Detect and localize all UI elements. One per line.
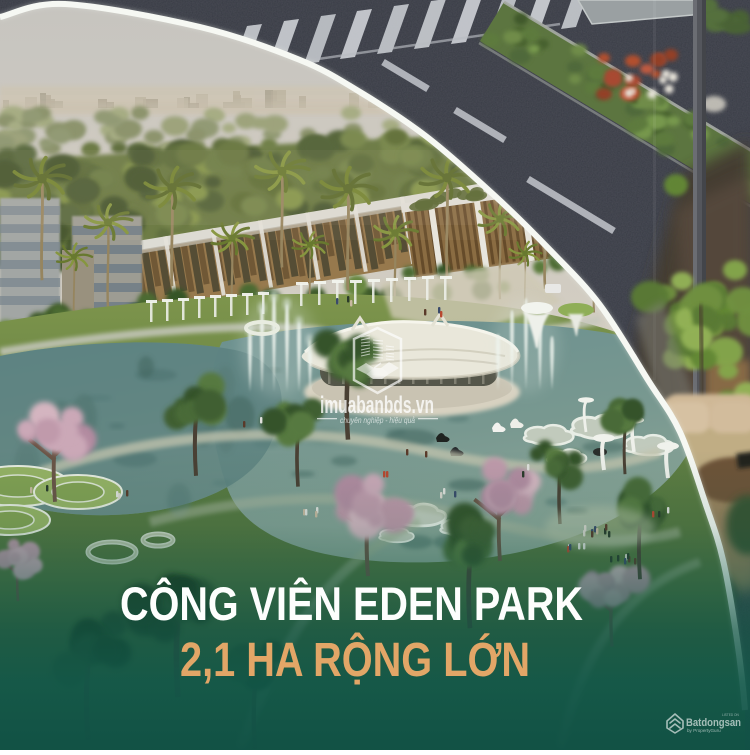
svg-text:CÔNG VIÊN EDEN PARK: CÔNG VIÊN EDEN PARK <box>120 577 583 630</box>
svg-text:chuyên nghiệp - hiệu quả: chuyên nghiệp - hiệu quả <box>340 415 415 425</box>
svg-text:2,1 HA RỘNG LỚN: 2,1 HA RỘNG LỚN <box>180 632 530 687</box>
svg-text:LISTED ON: LISTED ON <box>722 713 740 717</box>
svg-text:by PropertyGuru: by PropertyGuru <box>687 728 721 733</box>
